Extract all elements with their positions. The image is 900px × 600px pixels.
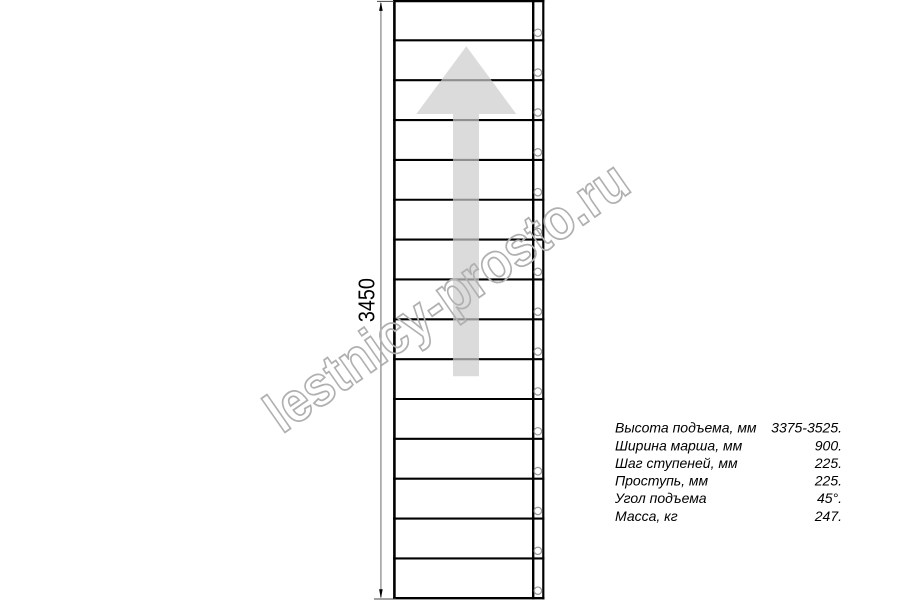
svg-text:225.: 225. — [814, 473, 842, 489]
svg-text:Шаг ступеней, мм: Шаг ступеней, мм — [615, 455, 738, 471]
svg-text:900.: 900. — [815, 437, 842, 453]
svg-text:Ширина марша, мм: Ширина марша, мм — [615, 437, 743, 453]
svg-text:Угол подъема: Угол подъема — [614, 490, 707, 506]
svg-text:247.: 247. — [814, 508, 842, 524]
svg-text:Проступь, мм: Проступь, мм — [615, 473, 709, 489]
svg-text:3375-3525.: 3375-3525. — [771, 420, 842, 436]
svg-text:45°.: 45°. — [817, 490, 842, 506]
svg-text:225.: 225. — [814, 455, 842, 471]
svg-text:Масса, кг: Масса, кг — [615, 508, 678, 524]
svg-text:Высота подъема, мм: Высота подъема, мм — [615, 420, 757, 436]
